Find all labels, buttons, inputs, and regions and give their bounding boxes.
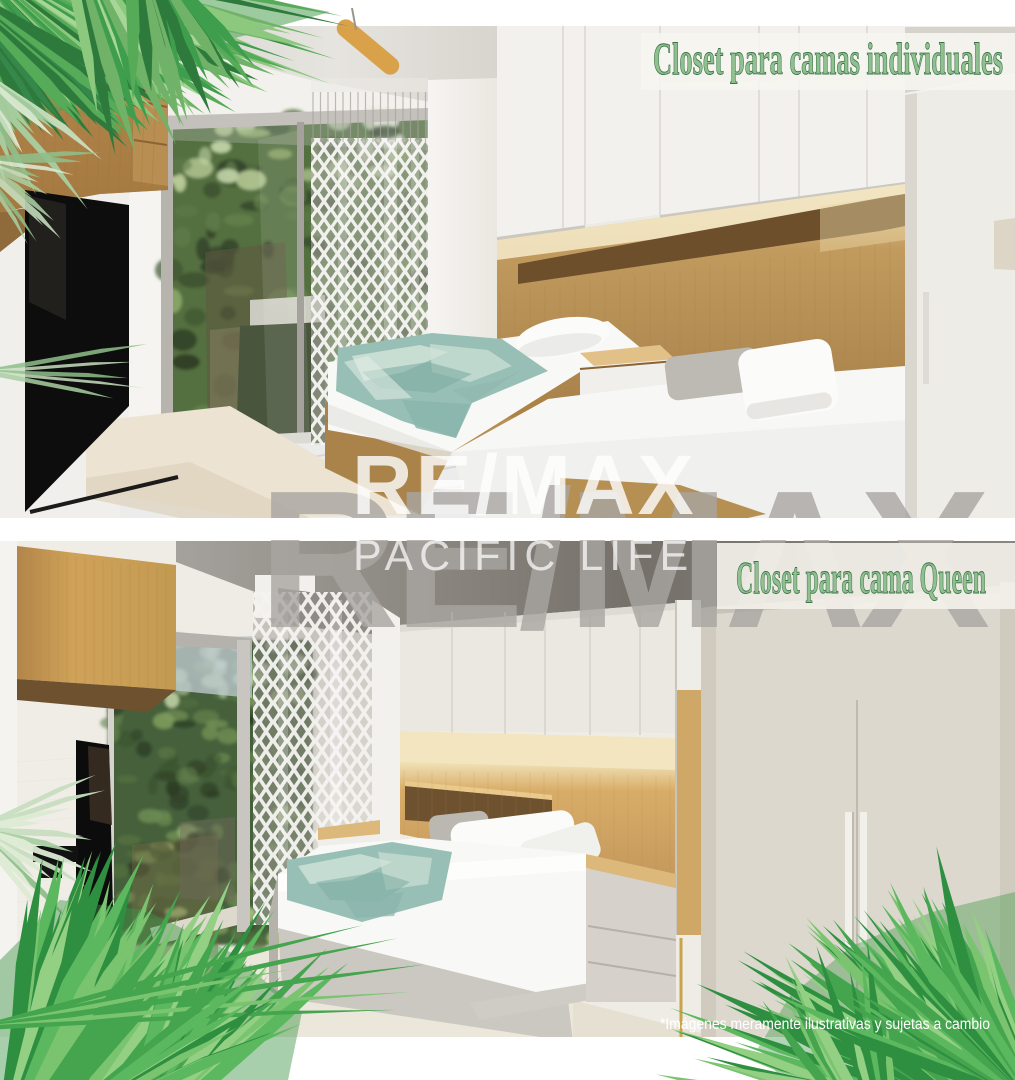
svg-text:Closet para camas individuales: Closet para camas individuales [653, 33, 1003, 84]
svg-text:PACIFIC LIFE: PACIFIC LIFE [353, 532, 694, 580]
svg-text:*Imágenes meramente ilustrativ: *Imágenes meramente ilustrativas y sujet… [660, 1016, 990, 1033]
svg-text:Closet para cama Queen: Closet para cama Queen [736, 552, 986, 603]
svg-text:RE/MAX: RE/MAX [352, 438, 697, 532]
